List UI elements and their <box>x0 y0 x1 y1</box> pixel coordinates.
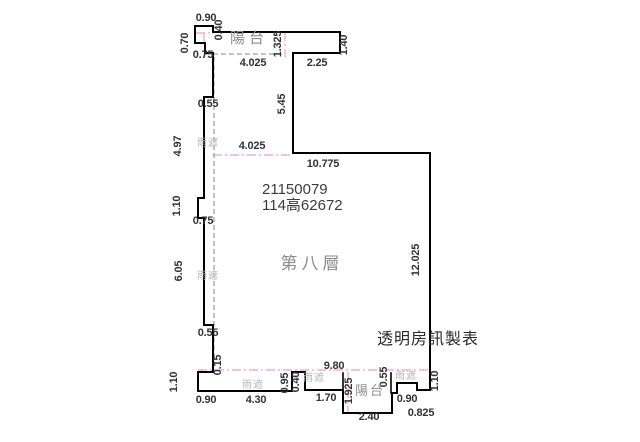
floor-plan-drawing: 0.900.400.700.75陽台1.3251.404.0252.250.55… <box>0 0 640 442</box>
dimension-label: 0.75 <box>193 215 214 227</box>
dimension-label: 2.40 <box>359 411 380 423</box>
balcony-label-top: 陽台 <box>230 30 268 47</box>
rain-shield-label: 雨遮 <box>197 136 219 149</box>
floor-plan-page: 0.900.400.700.75陽台1.3251.404.0252.250.55… <box>0 0 640 442</box>
dimension-label: 1.325 <box>272 31 284 58</box>
dimension-label: 4.30 <box>246 394 267 406</box>
dimension-label: 6.05 <box>173 261 185 282</box>
dimension-label: 0.90 <box>397 393 418 405</box>
dimension-label: 1.70 <box>316 392 337 404</box>
dimension-label: 10.775 <box>307 158 340 170</box>
dimension-label: 0.15 <box>212 355 224 376</box>
dimension-label: 2.25 <box>307 57 328 69</box>
main-wall-outline <box>195 26 430 413</box>
rain-shield-label: 雨遮 <box>197 269 219 282</box>
dimension-label: 0.70 <box>179 33 191 54</box>
dimension-label: 9.80 <box>324 360 345 372</box>
dimension-label: 1.10 <box>168 372 180 393</box>
dimension-label: 0.55 <box>378 367 390 388</box>
dimension-label: 0.90 <box>196 394 217 406</box>
dimension-label: 1.925 <box>343 378 355 405</box>
floor-label: 第八層 <box>281 254 344 273</box>
dimension-label: 4.97 <box>172 136 184 157</box>
dimension-label: 0.40 <box>213 20 225 41</box>
dimension-label: 1.40 <box>338 35 350 56</box>
dimension-label: 0.55 <box>198 327 219 339</box>
dimension-label: 1.10 <box>171 196 183 217</box>
dimension-label: 4.025 <box>239 140 266 152</box>
dimension-label: 4.025 <box>240 57 267 69</box>
rain-shield-label: 雨遮 <box>303 371 325 384</box>
rain-shield-label: 雨遮 <box>395 369 417 382</box>
plan-permit-number: 114高62672 <box>262 197 343 214</box>
plan-id-number: 21150079 <box>262 181 328 198</box>
dimension-label: 5.45 <box>276 94 288 115</box>
dimension-label: 1.10 <box>429 371 441 392</box>
dimension-label: 12.025 <box>410 244 422 277</box>
labels-layer: 0.900.400.700.75陽台1.3251.404.0252.250.55… <box>168 12 479 423</box>
rain-shield-label: 雨遮 <box>242 378 264 391</box>
dimension-label: 0.40 <box>290 372 302 393</box>
watermark: 透明房訊製表 <box>377 330 479 348</box>
balcony-centerlines-layer <box>196 32 431 412</box>
dimension-label: 0.75 <box>193 49 214 61</box>
wall-outline-layer <box>195 26 430 413</box>
dimension-label: 0.55 <box>198 98 219 110</box>
dimension-label: 0.825 <box>408 407 435 419</box>
